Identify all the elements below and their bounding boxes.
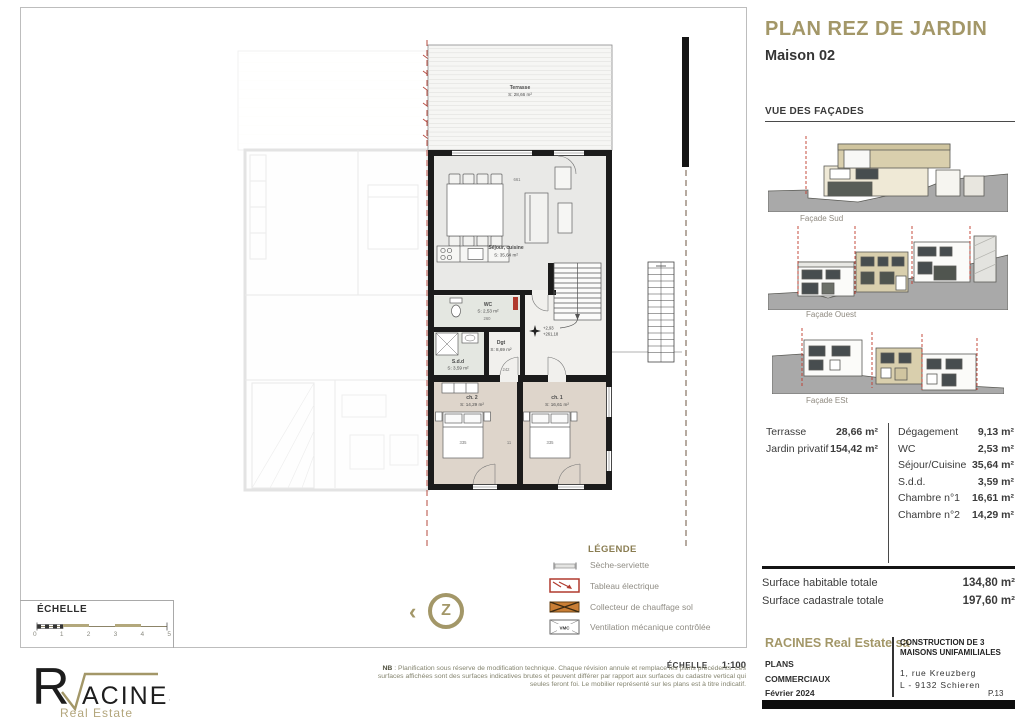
dgt-label: Dgt [497,340,506,346]
area-row-sdd: S.d.d.3,59 m² [898,474,1014,491]
floor-plan-drawing: +2,93 +261,18 Terrasse S: 28,66 m² Séjou… [230,35,700,555]
area-row-sejour: Séjour/Cuisine35,64 m² [898,457,1014,474]
scale-tick: 5 [167,631,171,638]
ch1-area: S: 16,61 m² [545,402,569,407]
totals-block: Surface habitable totale134,80 m² Surfac… [762,566,1015,610]
doc-date: Février 2024 [765,688,815,698]
ch2-area: S: 14,29 m² [460,402,484,407]
ch2-label: ch. 2 [466,395,478,401]
towel-radiator-icon [552,561,578,571]
wc-label: WC [484,302,493,308]
terrace [428,45,612,150]
area-table-right: Dégagement9,13 m² WC2,53 m² Séjour/Cuisi… [898,424,1014,523]
ch1-label: ch. 1 [551,395,563,401]
area-label: Chambre n°1 [898,490,960,507]
project-name: CONSTRUCTION DE 3 MAISONS UNIFAMILIALES [900,638,1018,657]
total-value: 134,80 m² [963,574,1015,592]
area-label: Terrasse [766,424,806,441]
area-row-wc: WC2,53 m² [898,441,1014,458]
area-label: Chambre n°2 [898,507,960,524]
total-habitable-row: Surface habitable totale134,80 m² [762,574,1015,592]
doc-type-line1: PLANS [765,659,794,669]
area-value: 35,64 m² [972,457,1014,474]
total-value: 197,60 m² [963,592,1015,610]
area-label: Dégagement [898,424,958,441]
address-line2: L - 9132 Schieren [900,680,980,690]
legend-item-collector: Collecteur de chauffage sol [590,602,693,612]
facade-est-label: Façade ESt [806,396,848,405]
total-cadastrale-row: Surface cadastrale totale197,60 m² [762,592,1015,610]
scale-tick: 3 [114,631,118,638]
area-label: S.d.d. [898,474,925,491]
north-indicator-chevron: ‹ [409,599,416,625]
area-label: Séjour/Cuisine [898,457,966,474]
total-label: Surface habitable totale [762,574,878,592]
area-label: WC [898,441,916,458]
scale-tick: 1 [60,631,64,638]
legend-item-panel: Tableau électrique [590,581,659,591]
area-value: 154,42 m² [830,441,878,458]
area-value: 16,61 m² [972,490,1014,507]
legend-heading: LÉGENDE [588,544,637,555]
elevation-value-2: +261,18 [543,332,559,337]
wc-area: S: 2,53 m² [477,309,499,314]
scale-tick: 4 [141,631,145,638]
area-row-terrasse: Terrasse28,66 m² [766,424,878,441]
total-label: Surface cadastrale totale [762,592,884,610]
doc-type-line2: COMMERCIAUX [765,674,830,684]
vmc-icon: VMC [549,619,580,635]
nb-note: NB : Planification sous réserve de modif… [370,665,746,689]
area-value: 9,13 m² [978,424,1014,441]
electrical-panel-icon [549,578,580,593]
area-value: 2,53 m² [978,441,1014,458]
dim-335-ch1: 335 [547,440,555,445]
vmc-label: VMC [560,626,571,631]
logo-tagline: Real Estate [60,706,133,720]
legend-item-towel: Sèche-serviette [590,560,649,570]
dim-335-ch2: 335 [460,440,468,445]
dim-11: 11 [507,440,512,445]
area-table-left: Terrasse28,66 m² Jardin privatif154,42 m… [766,424,878,457]
scale-ticks: 0 1 2 3 4 5 [33,631,171,638]
scale-tick: 2 [87,631,91,638]
elevation-value-1: +2,93 [543,326,554,331]
exterior-stair [648,262,674,362]
area-value: 3,59 m² [978,474,1014,491]
ghost-plan-neighbour [238,51,428,490]
scale-tick: 0 [33,631,37,638]
page-subtitle: Maison 02 [765,48,835,64]
sdd-label: S.d.d [452,359,464,365]
area-value: 28,66 m² [836,424,878,441]
north-indicator-glyph: Z [441,602,451,620]
sejour-area: S: 35,64 m² [494,253,518,258]
area-row-jardin: Jardin privatif154,42 m² [766,441,878,458]
dim-260: 260 [484,316,492,321]
scale-bar [36,622,168,631]
sdd-area: S: 3,59 m² [447,366,469,371]
titleblock-divider [892,637,894,697]
facade-sud-drawing [768,134,1008,212]
facades-heading: VUE DES FAÇADES [765,106,1015,122]
sejour-label: Séjour, cuisine [488,245,524,251]
dim-242: 242 [503,367,511,372]
area-row-chambre2: Chambre n°214,29 m² [898,507,1014,524]
terrace-area: S: 28,66 m² [508,92,532,97]
plan-sheet-page: { "page": { "title": "PLAN REZ DE JARDIN… [0,0,1024,726]
racines-logo: R ACINES Real Estate [30,652,170,720]
titleblock-bottom-bar [762,700,1015,709]
area-row-degagement: Dégagement9,13 m² [898,424,1014,441]
area-value: 14,29 m² [972,507,1014,524]
company-name: RACINES Real Estate sa [765,636,910,650]
page-number: P.13 [988,689,1003,698]
terrace-label: Terrasse [510,85,531,91]
dgt-area: S: 8,69 m² [490,347,512,352]
legend-item-vmc: Ventilation mécanique contrôlée [590,622,711,632]
facade-ouest-drawing [768,224,1008,310]
scale-heading: ÉCHELLE [37,604,87,615]
floor-heating-collector-icon [549,601,580,613]
facade-sud-label: Façade Sud [800,214,843,223]
facade-ouest-label: Façade Ouest [806,310,856,319]
north-indicator: Z [428,593,464,629]
nb-prefix: NB [383,665,393,672]
dim-661: 661 [514,177,522,182]
page-title: PLAN REZ DE JARDIN [765,18,987,41]
facade-est-drawing [772,326,1004,394]
area-table-divider [888,423,889,563]
area-label: Jardin privatif [766,441,828,458]
address-line1: 1, rue Kreuzberg [900,668,976,678]
nb-body: : Planification sous réserve de modifica… [378,665,746,688]
area-row-chambre1: Chambre n°116,61 m² [898,490,1014,507]
